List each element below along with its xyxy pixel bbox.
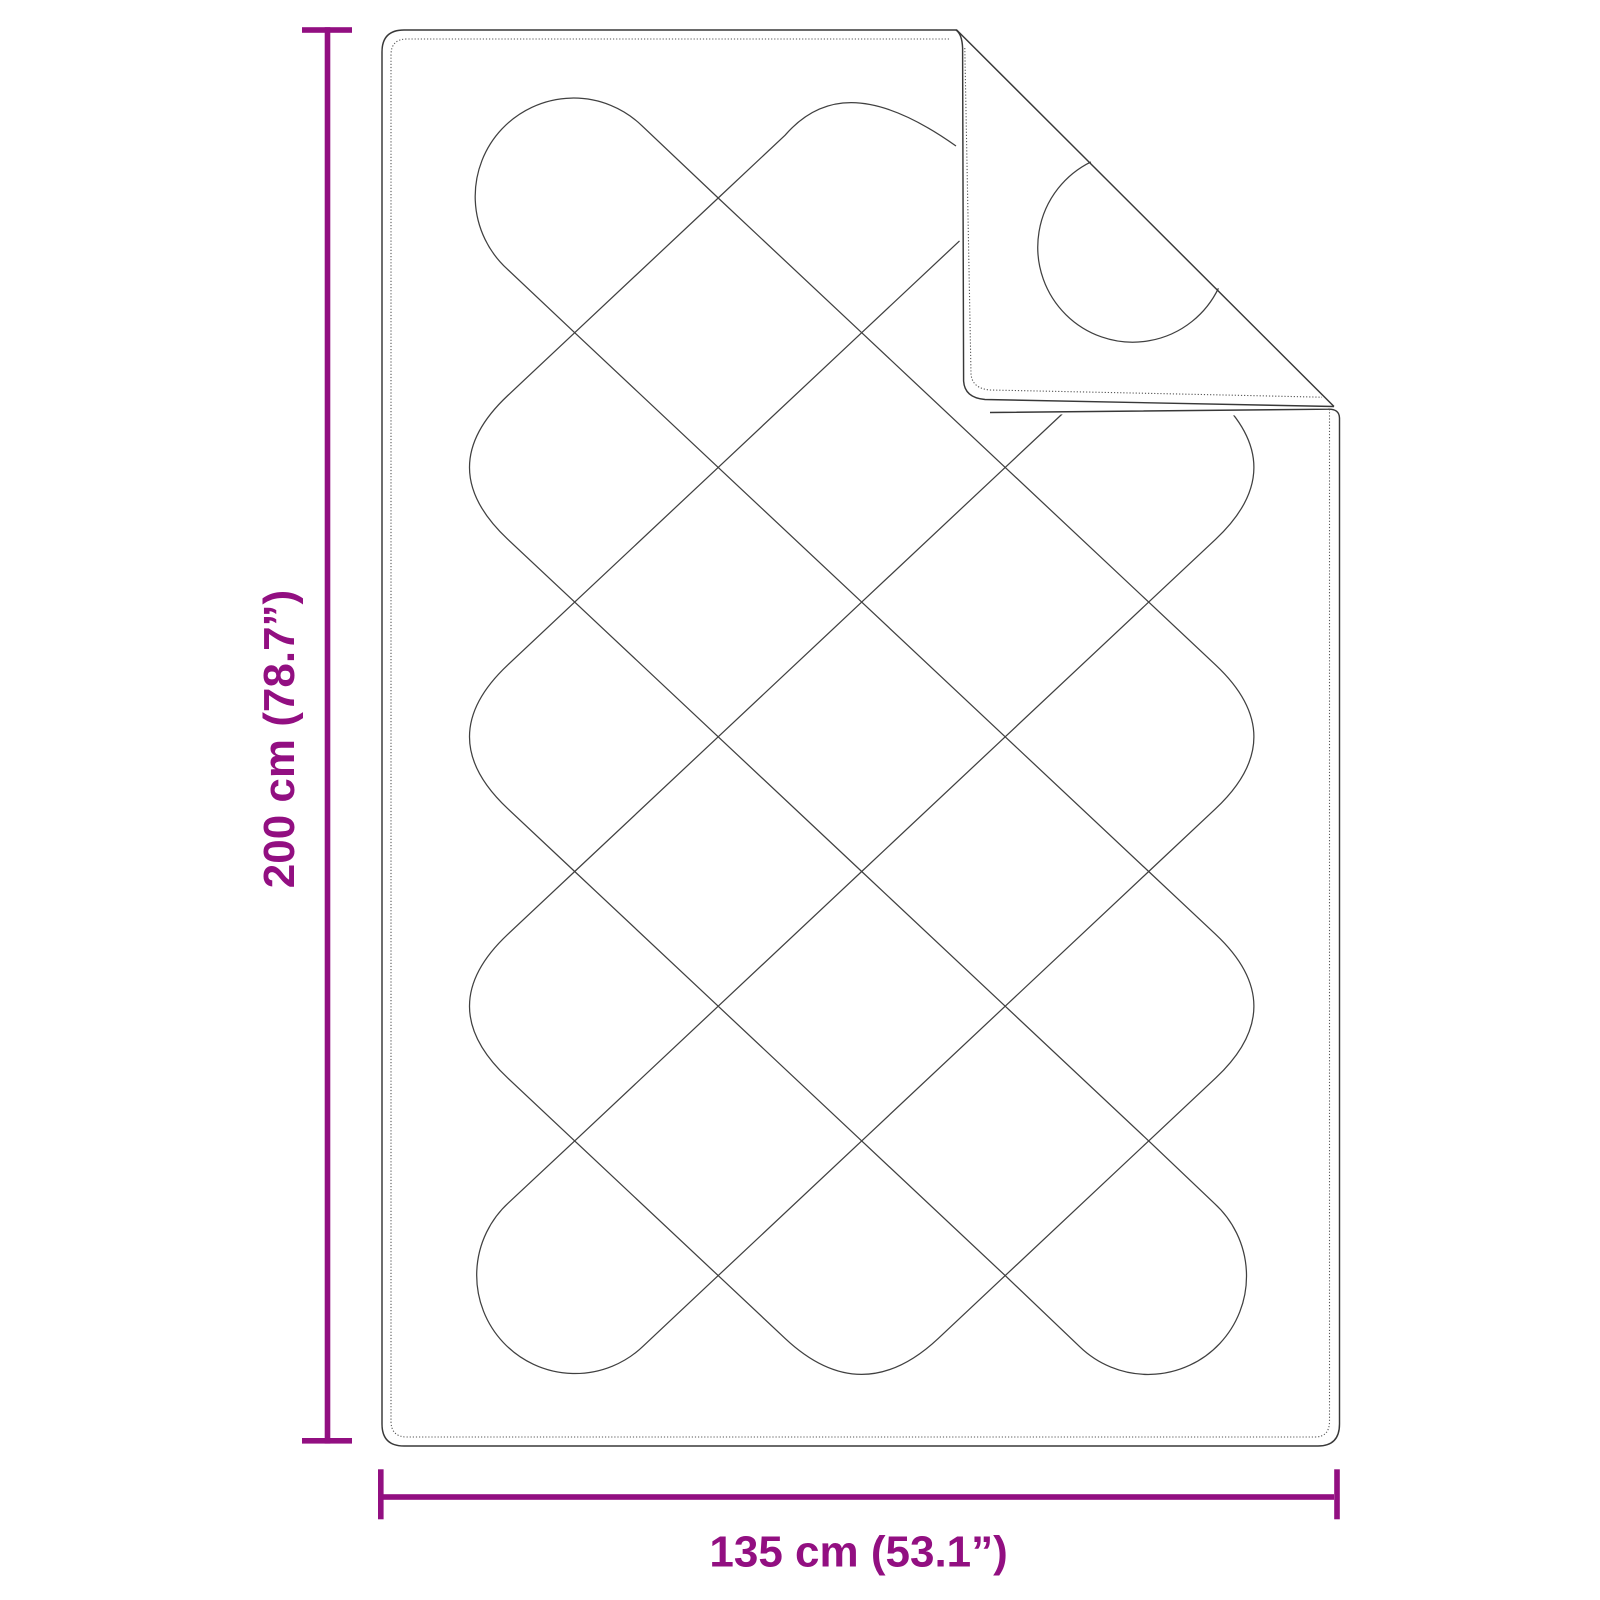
svg-text:135 cm (53.1”): 135 cm (53.1”) — [709, 1528, 1007, 1577]
svg-text:200 cm (78.7”): 200 cm (78.7”) — [255, 590, 304, 888]
